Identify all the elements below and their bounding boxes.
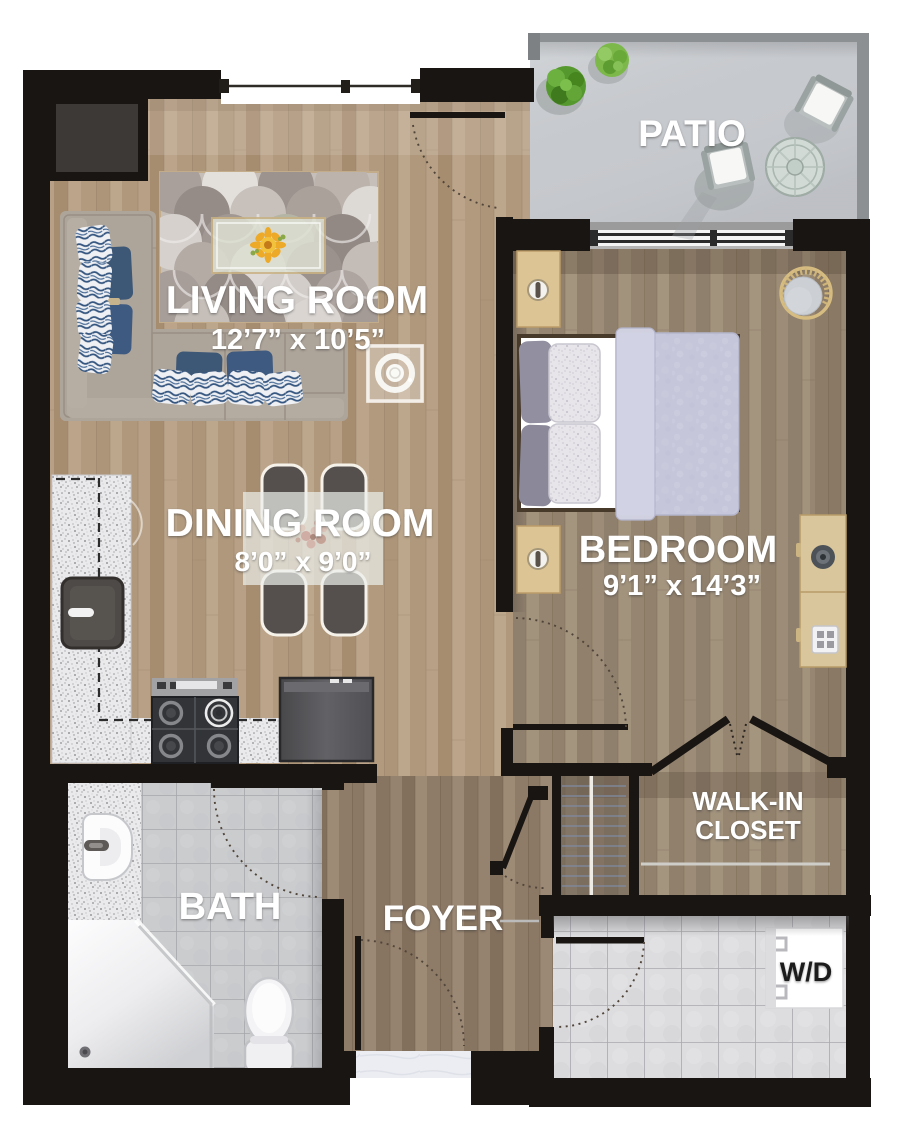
svg-text:WALK-IN: WALK-IN (692, 786, 803, 816)
svg-text:FOYER: FOYER (383, 899, 504, 938)
svg-text:W/D: W/D (780, 957, 832, 987)
svg-text:DINING ROOM: DINING ROOM (166, 502, 435, 545)
svg-text:CLOSET: CLOSET (695, 815, 801, 845)
svg-text:PATIO: PATIO (638, 113, 746, 154)
svg-text:12’7” x 10’5”: 12’7” x 10’5” (211, 324, 385, 356)
svg-text:BATH: BATH (179, 886, 282, 928)
svg-text:LIVING ROOM: LIVING ROOM (166, 279, 428, 322)
svg-text:BEDROOM: BEDROOM (579, 529, 777, 571)
svg-text:8’0” x 9’0”: 8’0” x 9’0” (235, 546, 372, 577)
svg-text:9’1” x 14’3”: 9’1” x 14’3” (603, 570, 761, 602)
